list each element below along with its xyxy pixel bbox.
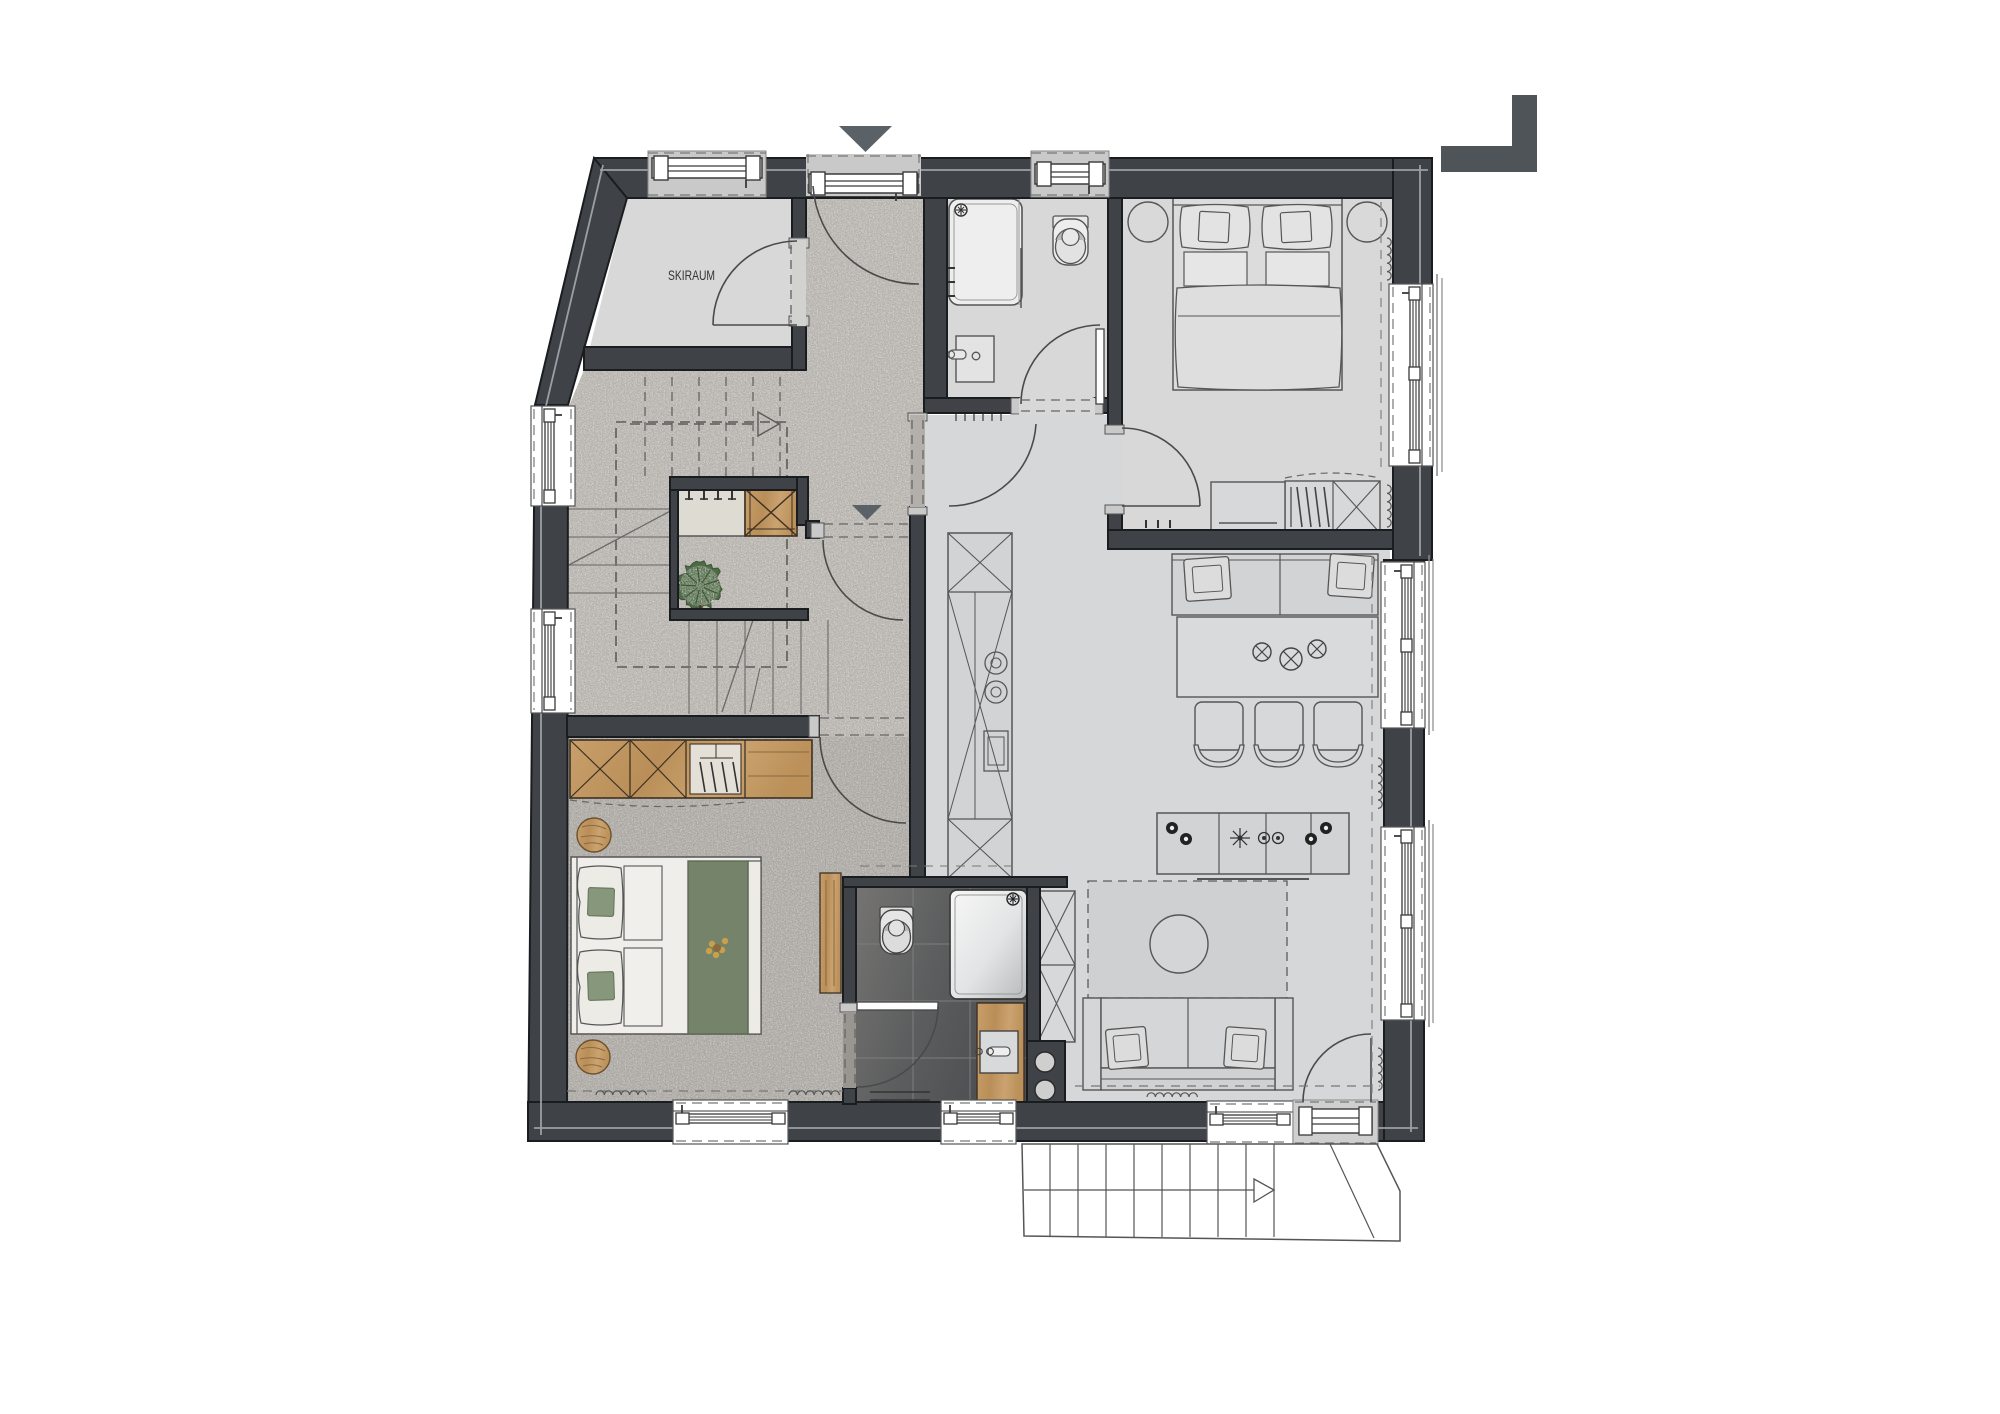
- svg-text:SKIRAUM: SKIRAUM: [668, 267, 715, 283]
